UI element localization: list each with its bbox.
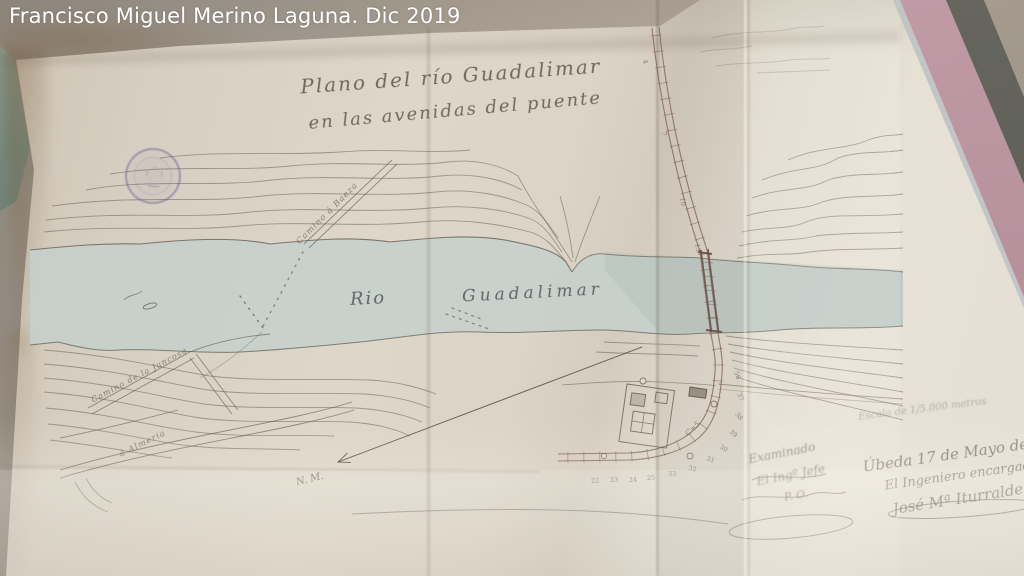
photo-of-map: 471013563738393031323325242322 [0,0,1024,576]
fold-panel-highlight [0,470,1024,576]
glass-glare [752,352,856,438]
photo-caption: Francisco Miguel Merino Laguna. Dic 2019 [9,4,461,28]
